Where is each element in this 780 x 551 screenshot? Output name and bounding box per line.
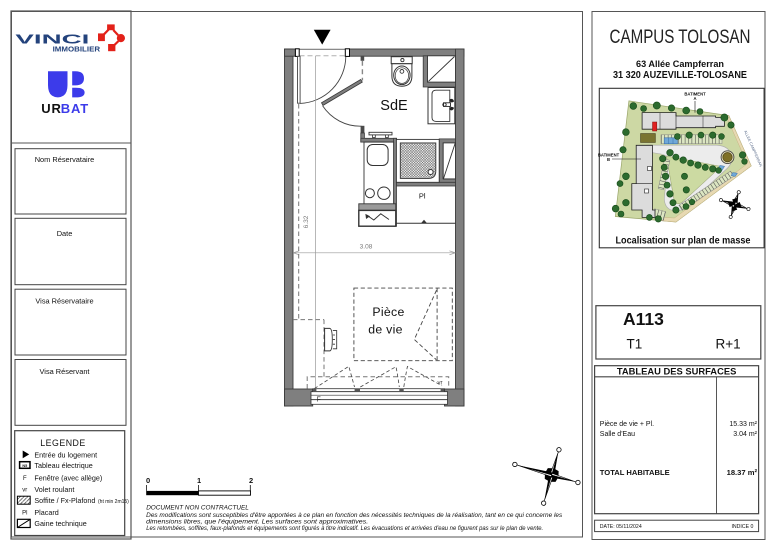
svg-text:UR: UR <box>41 101 61 116</box>
svg-text:N5: N5 <box>22 464 27 468</box>
svg-text:DOCUMENT NON CONTRACTUEL: DOCUMENT NON CONTRACTUEL <box>146 505 249 512</box>
svg-text:Tableau électrique: Tableau électrique <box>34 461 92 470</box>
svg-text:TABLEAU DES SURFACES: TABLEAU DES SURFACES <box>617 366 737 376</box>
svg-text:Volet roulant: Volet roulant <box>34 485 74 494</box>
svg-text:DATE: 05/11/2024: DATE: 05/11/2024 <box>600 524 642 530</box>
svg-text:2: 2 <box>249 476 253 485</box>
svg-text:R+1: R+1 <box>716 337 741 352</box>
svg-text:IMMOBILIER: IMMOBILIER <box>53 44 101 53</box>
svg-text:63 Allée Campferran: 63 Allée Campferran <box>636 59 724 70</box>
svg-text:A113: A113 <box>623 309 664 329</box>
svg-text:3.08: 3.08 <box>360 244 373 251</box>
svg-text:SdE: SdE <box>380 98 408 114</box>
svg-text:Pl: Pl <box>22 511 27 517</box>
svg-text:BAT: BAT <box>61 101 89 116</box>
svg-text:15.33 m²: 15.33 m² <box>729 421 757 428</box>
svg-text:de vie: de vie <box>368 323 403 337</box>
svg-text:INDICE 0: INDICE 0 <box>731 524 753 530</box>
svg-text:Pièce: Pièce <box>372 305 404 319</box>
svg-text:Date: Date <box>57 229 73 238</box>
svg-text:Localisation sur plan de masse: Localisation sur plan de masse <box>616 236 751 247</box>
svg-text:Salle d'Eau: Salle d'Eau <box>600 431 635 438</box>
svg-text:Nom Réservataire: Nom Réservataire <box>35 155 95 164</box>
svg-text:31 320 AUZEVILLE-TOLOSANE: 31 320 AUZEVILLE-TOLOSANE <box>613 70 747 81</box>
svg-text:3.04 m²: 3.04 m² <box>733 431 757 438</box>
svg-text:Placard: Placard <box>34 508 58 517</box>
svg-text:Les retombées, soffites, faux-: Les retombées, soffites, faux-plafonds e… <box>146 525 543 532</box>
svg-text:1: 1 <box>197 476 201 485</box>
svg-text:Entrée du logement: Entrée du logement <box>34 450 97 459</box>
svg-text:18.37 m²: 18.37 m² <box>727 468 758 477</box>
svg-text:6.32: 6.32 <box>303 215 310 228</box>
svg-text:vr: vr <box>22 488 27 494</box>
svg-text:(ht min 2m15): (ht min 2m15) <box>98 499 129 505</box>
svg-text:B: B <box>607 157 610 162</box>
svg-text:Visa Réservant: Visa Réservant <box>40 367 90 376</box>
svg-text:LEGENDE: LEGENDE <box>40 438 86 448</box>
svg-text:TOTAL HABITABLE: TOTAL HABITABLE <box>600 468 670 477</box>
svg-text:0: 0 <box>146 476 150 485</box>
svg-text:A: A <box>693 96 696 101</box>
svg-text:Pièce de vie + Pl.: Pièce de vie + Pl. <box>600 421 654 428</box>
svg-text:Pl: Pl <box>419 192 426 201</box>
svg-text:Soffite / Fx-Plafond: Soffite / Fx-Plafond <box>34 496 95 505</box>
svg-text:F: F <box>23 476 27 482</box>
svg-text:Visa Réservataire: Visa Réservataire <box>35 297 93 306</box>
svg-text:CAMPUS TOLOSAN: CAMPUS TOLOSAN <box>610 26 751 48</box>
svg-text:T1: T1 <box>627 337 643 352</box>
svg-text:Fenêtre (avec allège): Fenêtre (avec allège) <box>34 473 102 482</box>
svg-text:Gaine technique: Gaine technique <box>34 519 86 528</box>
svg-text:F: F <box>317 397 321 404</box>
